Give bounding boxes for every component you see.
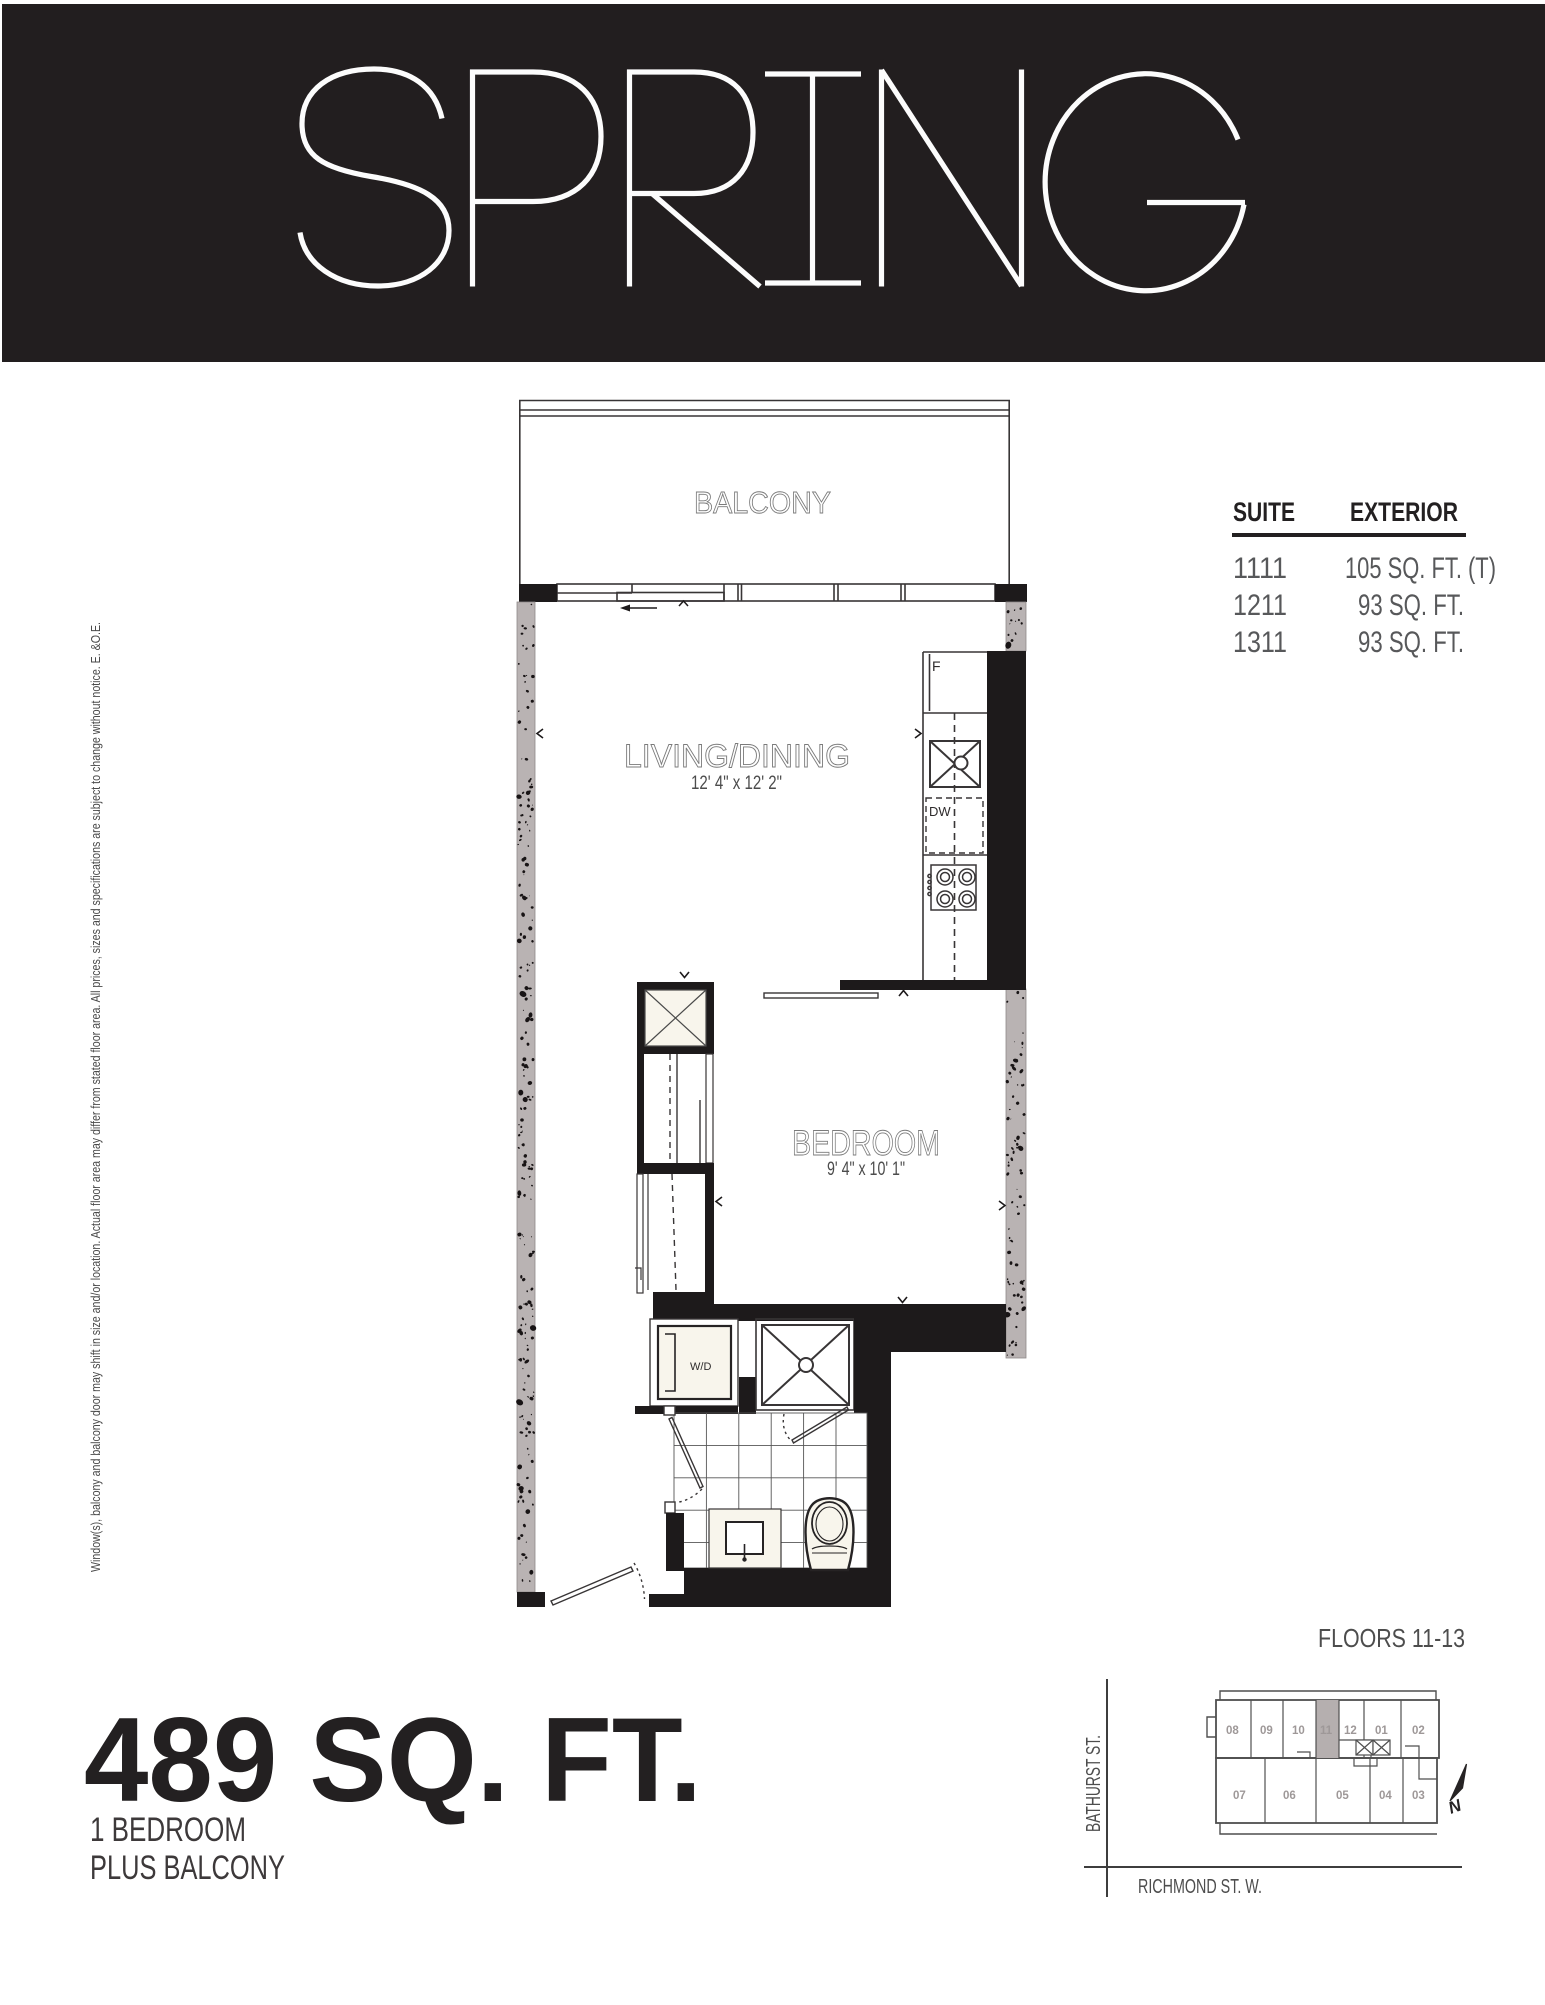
svg-text:11: 11 <box>1320 1725 1333 1737</box>
svg-text:W/D: W/D <box>690 1361 711 1373</box>
svg-text:PLUS BALCONY: PLUS BALCONY <box>90 1849 285 1887</box>
svg-text:04: 04 <box>1379 1790 1392 1802</box>
svg-text:BALCONY: BALCONY <box>694 485 831 520</box>
svg-text:02: 02 <box>1412 1725 1425 1737</box>
svg-text:93 SQ. FT.: 93 SQ. FT. <box>1358 626 1464 659</box>
svg-text:93 SQ. FT.: 93 SQ. FT. <box>1358 589 1464 622</box>
svg-text:03: 03 <box>1412 1790 1425 1802</box>
svg-text:05: 05 <box>1336 1790 1349 1802</box>
svg-text:BEDROOM: BEDROOM <box>792 1124 940 1163</box>
svg-text:1 BEDROOM: 1 BEDROOM <box>90 1811 246 1849</box>
svg-text:Window(s), balcony and balcony: Window(s), balcony and balcony door may … <box>88 622 103 1572</box>
svg-text:9' 4" x 10' 1": 9' 4" x 10' 1" <box>827 1159 905 1180</box>
svg-text:12' 4" x 12' 2": 12' 4" x 12' 2" <box>691 773 782 794</box>
svg-text:BATHURST ST.: BATHURST ST. <box>1083 1735 1105 1832</box>
svg-text:1211: 1211 <box>1233 589 1287 622</box>
svg-text:105 SQ. FT. (T): 105 SQ. FT. (T) <box>1345 552 1496 585</box>
svg-text:07: 07 <box>1233 1790 1246 1802</box>
svg-text:EXTERIOR: EXTERIOR <box>1350 497 1458 527</box>
svg-text:489 SQ. FT.: 489 SQ. FT. <box>84 1693 702 1827</box>
svg-text:08: 08 <box>1226 1725 1239 1737</box>
svg-text:RICHMOND ST. W.: RICHMOND ST. W. <box>1138 1876 1262 1898</box>
svg-text:LIVING/DINING: LIVING/DINING <box>624 738 850 774</box>
svg-text:06: 06 <box>1283 1790 1296 1802</box>
svg-text:10: 10 <box>1292 1725 1305 1737</box>
svg-text:SUITE: SUITE <box>1233 497 1295 527</box>
svg-text:09: 09 <box>1260 1725 1273 1737</box>
svg-text:12: 12 <box>1344 1725 1357 1737</box>
svg-text:F: F <box>932 658 941 674</box>
svg-text:1311: 1311 <box>1233 626 1287 659</box>
svg-text:DW: DW <box>929 804 951 819</box>
svg-text:01: 01 <box>1375 1725 1388 1737</box>
svg-text:FLOORS 11-13: FLOORS 11-13 <box>1318 1623 1465 1653</box>
svg-text:1111: 1111 <box>1233 552 1287 585</box>
